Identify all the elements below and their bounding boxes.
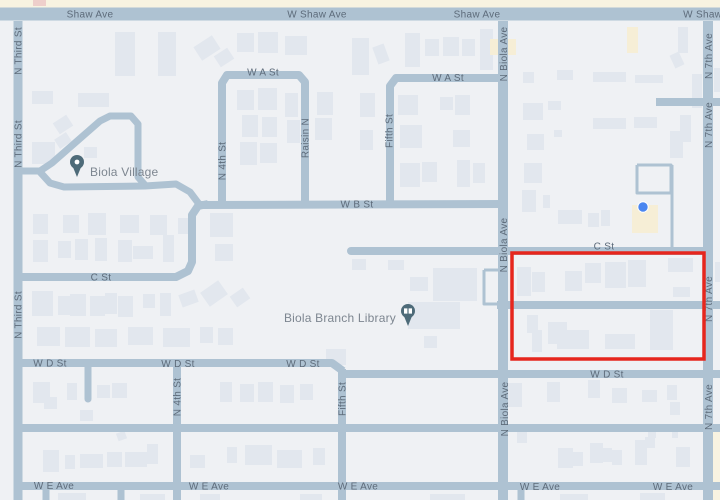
building	[44, 397, 57, 409]
street-label: W D St	[590, 370, 623, 381]
building	[524, 163, 542, 183]
building	[554, 130, 562, 137]
building	[143, 294, 155, 308]
street-label: N 7th Ave	[704, 33, 715, 79]
building	[112, 383, 127, 398]
building	[517, 267, 531, 296]
building	[115, 32, 135, 76]
building	[668, 258, 693, 272]
building	[405, 33, 420, 67]
street-label: C St	[91, 273, 112, 284]
building	[160, 293, 171, 316]
street-label: W D St	[33, 359, 66, 370]
street-label: Shaw Ave	[67, 10, 114, 21]
building	[58, 296, 72, 315]
building	[523, 103, 543, 120]
building	[280, 385, 294, 403]
building	[410, 277, 428, 291]
building	[352, 259, 366, 270]
building	[612, 388, 627, 403]
building	[650, 310, 673, 350]
street-label: W A St	[432, 73, 464, 84]
street-label: W E Ave	[34, 481, 74, 492]
building	[601, 210, 610, 226]
street-label: W E Ave	[653, 482, 693, 493]
building	[572, 452, 583, 466]
building	[360, 93, 375, 117]
building	[408, 302, 460, 329]
street-label: Fifth St	[338, 382, 349, 416]
building	[190, 455, 205, 468]
street-label: W E Ave	[189, 482, 229, 493]
building	[210, 213, 233, 237]
building	[240, 384, 254, 402]
building	[565, 271, 582, 291]
blue-dot-place-pin[interactable]	[638, 202, 648, 212]
building	[163, 235, 174, 262]
building	[158, 32, 176, 76]
building	[440, 97, 453, 110]
building	[352, 38, 369, 75]
building	[670, 131, 683, 158]
street-label: Fifth St	[385, 114, 396, 148]
building	[398, 95, 418, 115]
building	[422, 162, 437, 182]
street-label: W D St	[161, 359, 194, 370]
building	[84, 147, 97, 158]
building	[642, 390, 657, 402]
building	[95, 329, 117, 347]
building	[58, 493, 86, 500]
building	[605, 262, 626, 288]
building	[443, 37, 459, 56]
street-label: W D St	[286, 359, 319, 370]
building	[667, 385, 677, 400]
building	[462, 39, 475, 56]
building	[285, 36, 307, 55]
building	[78, 93, 109, 107]
building	[588, 380, 600, 398]
building	[640, 493, 665, 500]
building	[400, 125, 422, 148]
street-label: C St	[594, 242, 615, 253]
building	[593, 72, 626, 82]
building	[215, 244, 233, 261]
building	[258, 32, 278, 53]
building	[455, 95, 470, 115]
street-label: W E Ave	[520, 482, 560, 493]
building	[558, 448, 573, 468]
street-label: W B St	[341, 200, 374, 211]
biola-village-label: Biola Village	[90, 165, 159, 179]
building	[242, 115, 258, 137]
building	[388, 260, 404, 270]
biola-branch-library-label: Biola Branch Library	[284, 311, 396, 325]
building	[635, 75, 663, 83]
building	[105, 293, 117, 314]
street-label: W Shaw Av	[683, 10, 720, 21]
building	[33, 0, 46, 6]
building	[400, 163, 420, 187]
building	[300, 494, 322, 500]
building	[227, 447, 237, 463]
building	[262, 117, 277, 137]
building	[557, 70, 573, 80]
building	[557, 330, 589, 349]
building	[128, 327, 153, 345]
building	[163, 328, 190, 347]
street-label: Raisin N	[301, 118, 312, 158]
building	[118, 240, 132, 262]
building	[453, 130, 470, 147]
building	[558, 210, 582, 224]
street-label: N 7th Ave	[704, 384, 715, 430]
building	[715, 262, 720, 282]
building	[237, 90, 254, 110]
building	[200, 494, 220, 500]
building	[317, 92, 333, 115]
building	[603, 448, 612, 462]
building	[543, 195, 550, 208]
building	[43, 450, 59, 472]
building	[673, 287, 690, 297]
building	[95, 238, 107, 261]
building	[220, 382, 232, 402]
street-label: N Biola Ave	[499, 26, 510, 81]
building	[547, 382, 560, 402]
map-viewport[interactable]: Shaw AveW Shaw AveShaw AveW Shaw AvW A S…	[0, 0, 720, 500]
building	[287, 120, 300, 143]
building	[560, 494, 588, 500]
building	[473, 163, 485, 183]
street-label: N 4th St	[173, 378, 184, 417]
building	[285, 93, 298, 117]
building	[70, 294, 86, 316]
building	[260, 143, 277, 163]
building	[32, 291, 53, 316]
building	[32, 91, 53, 104]
street-label: N Third St	[14, 291, 25, 339]
building	[313, 448, 325, 465]
map-pin-icon[interactable]	[401, 304, 415, 318]
building	[532, 272, 545, 292]
building	[75, 239, 88, 260]
building	[424, 336, 437, 348]
building	[118, 296, 133, 317]
building	[245, 445, 272, 465]
street-label: W Shaw Ave	[287, 10, 347, 21]
building	[277, 450, 302, 468]
building	[147, 444, 158, 464]
map-canvas[interactable]: Shaw AveW Shaw AveShaw AveW Shaw AvW A S…	[0, 0, 720, 500]
building	[670, 402, 680, 415]
building	[218, 328, 233, 345]
building	[585, 263, 601, 283]
street-label: W E Ave	[338, 482, 378, 493]
building	[628, 260, 646, 287]
building	[107, 452, 122, 467]
building	[65, 455, 75, 469]
building	[360, 130, 373, 150]
building	[532, 330, 542, 352]
building	[97, 385, 110, 398]
blue-dot-icon[interactable]	[638, 202, 648, 212]
building	[645, 437, 655, 448]
building	[80, 410, 93, 421]
street-label: N 4th St	[218, 142, 229, 181]
building	[150, 215, 167, 235]
building	[90, 296, 105, 316]
building	[605, 334, 635, 349]
building	[140, 494, 165, 500]
building	[315, 118, 332, 140]
building	[588, 213, 599, 227]
building	[433, 268, 477, 301]
building	[67, 383, 77, 400]
building	[58, 241, 71, 258]
street-label: N Third St	[14, 27, 25, 75]
street-label: W A St	[247, 68, 279, 79]
building	[125, 452, 147, 467]
building	[88, 213, 106, 235]
street-label: N Biola Ave	[499, 217, 510, 272]
building	[522, 190, 536, 212]
building	[65, 327, 90, 347]
cream-land-area	[0, 0, 720, 8]
building	[63, 215, 79, 233]
building	[548, 101, 561, 110]
building	[258, 88, 277, 110]
building	[612, 450, 622, 465]
building	[634, 117, 657, 128]
building	[200, 327, 213, 343]
building	[593, 118, 626, 129]
building	[676, 447, 690, 467]
building	[527, 134, 544, 150]
building	[37, 327, 60, 346]
building	[523, 72, 534, 83]
building	[120, 215, 139, 233]
building	[627, 27, 638, 53]
building	[300, 384, 313, 400]
building	[80, 454, 103, 468]
building	[672, 432, 678, 438]
building	[590, 443, 603, 463]
street-label: N 7th Ave	[704, 102, 715, 148]
street-label: N Biola Ave	[500, 381, 511, 436]
street-label: N Third St	[14, 120, 25, 168]
street-label: Shaw Ave	[454, 10, 501, 21]
building	[425, 39, 439, 56]
building	[457, 160, 470, 187]
building	[33, 240, 48, 262]
building	[133, 246, 153, 259]
building	[678, 27, 688, 53]
building	[237, 33, 254, 52]
building	[258, 382, 273, 402]
building	[240, 142, 257, 165]
pin-dot-icon	[75, 160, 80, 165]
building	[430, 494, 465, 500]
building	[517, 432, 527, 443]
building	[33, 214, 48, 234]
